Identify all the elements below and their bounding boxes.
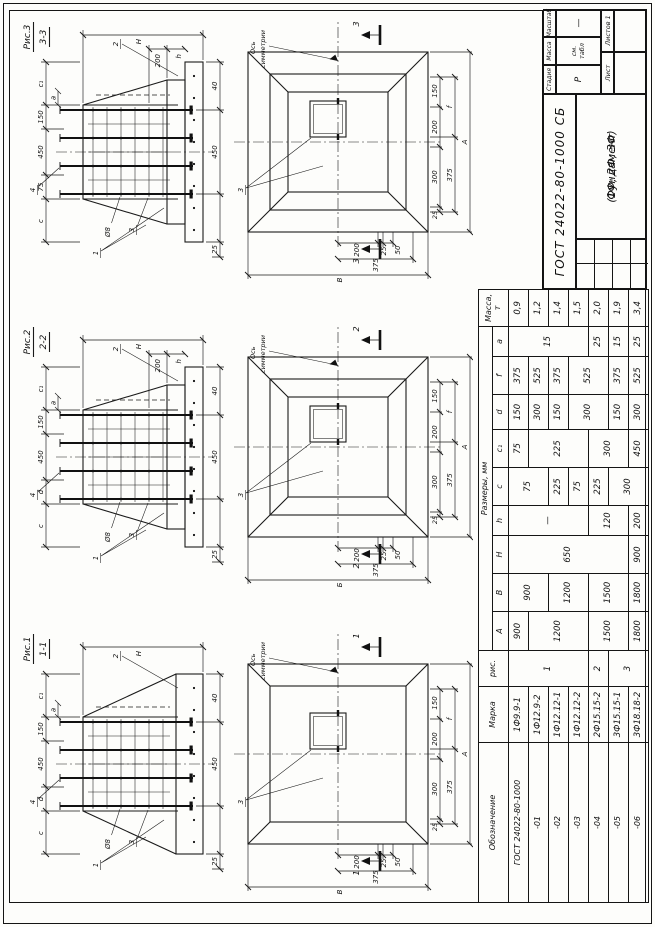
spec-row: ГОСТ 24022-80-10001Ф9.9-11900900650—7575… bbox=[509, 289, 529, 902]
col-header-A: А bbox=[493, 612, 509, 651]
figure-drawing: Рис.3 3-3 bbox=[8, 7, 473, 287]
dim-450: 450 bbox=[37, 450, 45, 464]
figure-label: Рис.3 bbox=[23, 24, 33, 49]
spec-cell-f: 375 bbox=[509, 357, 529, 395]
dim-40: 40 bbox=[211, 81, 219, 90]
plan-callout: 3 bbox=[237, 138, 323, 195]
spec-cell-a: 15 bbox=[509, 326, 589, 356]
callout-3: 3 bbox=[128, 228, 136, 232]
callout-1: 1 bbox=[92, 863, 100, 867]
figure-label: Рис.2 bbox=[23, 329, 33, 354]
spec-cell-d: 300 bbox=[629, 395, 649, 430]
empty-cell-1 bbox=[614, 52, 647, 94]
dim-plan-375-left: 375 bbox=[372, 563, 380, 577]
section-callouts: 1 4 2 3 Ø8 bbox=[29, 39, 178, 258]
dim-150: 150 bbox=[37, 722, 45, 736]
dim-25: 25 bbox=[211, 550, 219, 559]
plan-view: Ось симметрии 3 3 3 bbox=[234, 19, 473, 282]
spec-cell-obozn: ГОСТ 24022-80-1000 bbox=[509, 743, 529, 903]
plan-view: Ось симметрии 1 1 3 bbox=[234, 631, 473, 894]
dim-plan-b200: 200 bbox=[431, 732, 439, 746]
spec-cell-c: 300 bbox=[609, 468, 649, 506]
col-header-a: а bbox=[493, 326, 509, 356]
plan-callout-3: 3 bbox=[237, 493, 245, 497]
column-plan-square bbox=[310, 101, 346, 137]
dim-25: 25 bbox=[211, 245, 219, 254]
spec-row: -021Ф12.12-112002251503751,4 bbox=[549, 289, 569, 902]
drawing-sheet: Рис.1 1-1 bbox=[0, 0, 655, 927]
dim-plan-200: 200 bbox=[353, 855, 361, 869]
spec-cell-obozn: -06 bbox=[629, 743, 649, 903]
spec-cell-A: 900 bbox=[509, 612, 529, 651]
spec-cell-B: 900 bbox=[509, 574, 549, 612]
spec-cell-d: 150 bbox=[609, 395, 629, 430]
dim-plan-375-left: 375 bbox=[372, 258, 380, 272]
callout-2: 2 bbox=[112, 653, 120, 658]
spec-cell-A: 1500 bbox=[589, 612, 629, 651]
spec-cell-ris: 3 bbox=[609, 651, 649, 687]
spec-cell-c1: 75 bbox=[509, 430, 529, 468]
dim-c1: c₁ bbox=[37, 80, 45, 87]
dim-a: а bbox=[50, 96, 58, 100]
title-line2: (1Ф; 2Ф; 3Ф) bbox=[605, 130, 619, 202]
section-cut-marks: 1 1 bbox=[352, 633, 380, 875]
dim-plan-50: 50 bbox=[394, 857, 402, 866]
spec-cell-B: 1200 bbox=[549, 574, 589, 612]
dim-plan-f: f bbox=[446, 716, 454, 720]
axis-label-line2: симметрии bbox=[259, 335, 267, 373]
dim-plan-B: Б bbox=[336, 582, 344, 587]
spec-cell-marka: 3Ф18.18-2 bbox=[629, 687, 649, 743]
dim-h: h bbox=[175, 359, 183, 363]
col-header-B: В bbox=[493, 574, 509, 612]
spec-cell-c: 225 bbox=[549, 468, 569, 506]
spec-cell-c1: 450 bbox=[629, 430, 649, 468]
section-bottom-dims: 25 450 40 bbox=[196, 671, 224, 872]
section-title: 1-1 bbox=[39, 642, 49, 657]
section-view: c d 450 150 c₁ а 25 450 40 bbox=[29, 335, 224, 565]
spec-cell-f: 525 bbox=[629, 357, 649, 395]
dim-plan-A: А bbox=[461, 444, 469, 450]
spec-cell-mass: 0,9 bbox=[509, 289, 529, 326]
axis-label-line2: симметрии bbox=[259, 30, 267, 68]
col-header-H: Н bbox=[493, 536, 509, 574]
dim-450: 450 bbox=[37, 757, 45, 771]
document-code: ГОСТ 24022-80-1000 СБ bbox=[543, 94, 576, 289]
dim-c1: c₁ bbox=[37, 692, 45, 699]
spec-cell-marka: 1Ф12.12-1 bbox=[549, 687, 569, 743]
dim-c: c bbox=[37, 219, 45, 223]
dim-bolt-450: 450 bbox=[211, 145, 219, 159]
spec-cell-ris: 2 bbox=[589, 651, 609, 687]
figure-drawing: Рис.1 1-1 bbox=[8, 619, 473, 899]
col-header-ris: рис. bbox=[479, 651, 509, 687]
callout-1: 1 bbox=[92, 556, 100, 560]
spec-table: Обозначение Марка рис. Размеры, мм Масса… bbox=[478, 289, 649, 903]
col-header-marka: Марка bbox=[479, 687, 509, 743]
dim-200: 200 bbox=[154, 358, 162, 372]
dim-plan-375-bottom: 375 bbox=[446, 780, 454, 794]
callout-4: 4 bbox=[29, 800, 37, 804]
figure-label: Рис.1 bbox=[23, 637, 33, 662]
section-bottom-dims: 25 450 40 bbox=[196, 59, 224, 260]
spec-cell-c1: 225 bbox=[529, 430, 589, 468]
cut-label-right: 2 bbox=[352, 326, 361, 331]
spec-cell-mass: 1,9 bbox=[609, 289, 629, 326]
figures-row: Рис.1 1-1 bbox=[0, 0, 478, 927]
callout-2: 2 bbox=[112, 346, 120, 351]
callout-3: 3 bbox=[128, 840, 136, 844]
callout-1: 1 bbox=[92, 251, 100, 255]
dim-H: Н bbox=[135, 343, 143, 349]
spec-cell-h: 120 bbox=[589, 506, 629, 536]
dim-c: c bbox=[37, 524, 45, 528]
dim-plan-300: 300 bbox=[431, 475, 439, 489]
section-title: 3-3 bbox=[39, 29, 49, 44]
spec-cell-f: 525 bbox=[529, 357, 549, 395]
plan-bottom-dims: 25 300 200 150 375 f А bbox=[430, 661, 473, 847]
plan-view: Ось симметрии 2 2 3 bbox=[234, 324, 473, 587]
spec-cell-c1: 300 bbox=[589, 430, 629, 468]
spec-cell-obozn: -05 bbox=[609, 743, 629, 903]
signature-grid bbox=[576, 239, 647, 289]
axis-of-symmetry-label: Ось симметрии bbox=[249, 30, 338, 68]
spec-cell-ris: 1 bbox=[509, 651, 589, 687]
dim-a: а bbox=[50, 708, 58, 712]
callout-4: 4 bbox=[29, 188, 37, 192]
spec-cell-obozn: -02 bbox=[549, 743, 569, 903]
spec-cell-mass: 2,0 bbox=[589, 289, 609, 326]
dim-c1: c₁ bbox=[37, 385, 45, 392]
stage-header: Стадия bbox=[543, 65, 556, 94]
col-header-c1: c₁ bbox=[493, 430, 509, 468]
figure-caption: Рис.3 3-3 bbox=[23, 22, 50, 52]
dim-plan-25: 25 bbox=[380, 858, 388, 867]
title-block: ГОСТ 24022-80-1000 СБ Стадия Масса Масшт… bbox=[542, 10, 646, 290]
spec-cell-c: 75 bbox=[569, 468, 589, 506]
dim-plan-25: 25 bbox=[380, 551, 388, 560]
col-header-f: f bbox=[493, 357, 509, 395]
figure-group: Рис.3 3-3 bbox=[8, 7, 473, 287]
col-header-mass: Масса, т bbox=[479, 289, 509, 326]
sheet-cell: Лист bbox=[601, 52, 614, 94]
spec-cell-A: 1800 bbox=[629, 612, 649, 651]
figure-group: Рис.2 2-2 bbox=[8, 312, 473, 592]
spec-cell-mass: 1,5 bbox=[569, 289, 589, 326]
column-plan-square bbox=[310, 713, 346, 749]
figure-drawing: Рис.2 2-2 bbox=[8, 312, 473, 592]
callout-rebar-diameter: Ø8 bbox=[104, 838, 112, 850]
spec-cell-marka: 1Ф12.12-2 bbox=[569, 687, 589, 743]
spec-cell-mass: 3,4 bbox=[629, 289, 649, 326]
spec-cell-c: 75 bbox=[509, 468, 549, 506]
spec-cell-H: 650 bbox=[509, 536, 629, 574]
dim-plan-200: 200 bbox=[353, 548, 361, 562]
drawing-title: Фундамент (1Ф; 2Ф; 3Ф) bbox=[576, 94, 647, 239]
plan-bottom-dims: 25 300 200 150 375 f А bbox=[430, 354, 473, 540]
dim-plan-b25: 25 bbox=[431, 823, 439, 831]
dim-200: 200 bbox=[154, 53, 162, 67]
dim-plan-300: 300 bbox=[431, 782, 439, 796]
dim-450: 450 bbox=[37, 145, 45, 159]
col-header-oboznachenie: Обозначение bbox=[479, 743, 509, 903]
plan-callout: 3 bbox=[237, 443, 323, 500]
dim-plan-A: А bbox=[461, 751, 469, 757]
spec-cell-H: 900 bbox=[629, 536, 649, 574]
spec-cell-obozn: -03 bbox=[569, 743, 589, 903]
dim-plan-A: А bbox=[461, 139, 469, 145]
spec-cell-d: 300 bbox=[529, 395, 549, 430]
mass-value: см. табл bbox=[556, 37, 601, 65]
spec-cell-mass: 1,2 bbox=[529, 289, 549, 326]
dim-plan-B: В bbox=[336, 889, 344, 894]
section-cut-marks: 3 3 bbox=[352, 21, 380, 263]
col-header-c: c bbox=[493, 468, 509, 506]
column-plan-square bbox=[310, 406, 346, 442]
dim-plan-f: f bbox=[446, 409, 454, 413]
axis-label-line1: Ось bbox=[249, 653, 257, 666]
section-height-dim: Н bbox=[80, 335, 206, 408]
dim-plan-50: 50 bbox=[394, 550, 402, 559]
dim-plan-200: 200 bbox=[353, 243, 361, 257]
spec-cell-obozn: -01 bbox=[529, 743, 549, 903]
spec-cell-f: 525 bbox=[569, 357, 609, 395]
axis-label-line1: Ось bbox=[249, 346, 257, 359]
plan-callout: 3 bbox=[237, 750, 323, 807]
reinforcement-mesh bbox=[88, 687, 195, 843]
dim-plan-375-left: 375 bbox=[372, 870, 380, 884]
section-bottom-dims: 25 450 40 bbox=[196, 364, 224, 565]
stage-value: Р bbox=[556, 65, 601, 94]
spec-cell-obozn: -04 bbox=[589, 743, 609, 903]
plan-callout-3: 3 bbox=[237, 188, 245, 192]
callout-2: 2 bbox=[112, 41, 120, 46]
figure-caption: Рис.1 1-1 bbox=[23, 634, 50, 664]
section-height-dim: Н bbox=[80, 30, 206, 103]
spec-cell-marka: 1Ф12.9-2 bbox=[529, 687, 549, 743]
section-title: 2-2 bbox=[39, 334, 49, 349]
empty-cell-2 bbox=[614, 9, 647, 52]
section-cut-marks: 2 2 bbox=[352, 326, 380, 568]
spec-cell-B: 1800 bbox=[629, 574, 649, 612]
dim-150: 150 bbox=[37, 415, 45, 429]
scanned-drawing-page: Рис.1 1-1 bbox=[0, 0, 655, 927]
axis-label-line2: симметрии bbox=[259, 642, 267, 680]
dim-plan-150: 150 bbox=[431, 389, 439, 403]
callout-rebar-diameter: Ø8 bbox=[104, 531, 112, 543]
cut-label-right: 3 bbox=[352, 21, 361, 26]
spec-cell-a: 15 bbox=[609, 326, 629, 356]
spec-cell-mass: 1,4 bbox=[549, 289, 569, 326]
dim-a: а bbox=[50, 401, 58, 405]
dim-plan-b200: 200 bbox=[431, 120, 439, 134]
dim-plan-25: 25 bbox=[380, 246, 388, 255]
dim-40: 40 bbox=[211, 386, 219, 395]
figure-group: Рис.1 1-1 bbox=[8, 619, 473, 899]
dim-plan-f: f bbox=[446, 104, 454, 108]
plan-callout-3: 3 bbox=[237, 800, 245, 804]
spec-cell-marka: 2Ф15.15-2 bbox=[589, 687, 609, 743]
callout-4: 4 bbox=[29, 493, 37, 497]
scale-value: — bbox=[556, 9, 601, 37]
section-height-dim: Н bbox=[80, 642, 206, 715]
spec-row: -063Ф18.18-218001800900200450300525253,4 bbox=[629, 289, 649, 902]
dim-H: Н bbox=[135, 650, 143, 656]
spec-cell-h: 200 bbox=[629, 506, 649, 536]
dim-plan-b25: 25 bbox=[431, 516, 439, 524]
figure-caption: Рис.2 2-2 bbox=[23, 327, 50, 357]
dim-bolt-450: 450 bbox=[211, 450, 219, 464]
section-view: c d 450 150 c₁ а 25 450 40 bbox=[29, 642, 224, 872]
dim-plan-150: 150 bbox=[431, 696, 439, 710]
axis-of-symmetry-label: Ось симметрии bbox=[249, 642, 338, 680]
dim-plan-b25: 25 bbox=[431, 211, 439, 219]
col-header-d: d bbox=[493, 395, 509, 430]
dim-bolt-450: 450 bbox=[211, 757, 219, 771]
mass-header: Масса bbox=[543, 37, 556, 65]
dim-150: 150 bbox=[37, 110, 45, 124]
scale-header: Масштаб bbox=[543, 9, 556, 37]
dim-plan-50: 50 bbox=[394, 245, 402, 254]
spec-cell-c: 225 bbox=[589, 468, 609, 506]
cut-label-right: 1 bbox=[352, 633, 361, 638]
spec-cell-A: 1200 bbox=[529, 612, 589, 651]
col-header-h: h bbox=[493, 506, 509, 536]
spec-cell-B: 1500 bbox=[589, 574, 629, 612]
spec-cell-a: 25 bbox=[629, 326, 649, 356]
dim-plan-150: 150 bbox=[431, 84, 439, 98]
dim-plan-300: 300 bbox=[431, 170, 439, 184]
spec-cell-f: 375 bbox=[549, 357, 569, 395]
callout-rebar-diameter: Ø8 bbox=[104, 226, 112, 238]
spec-cell-f: 375 bbox=[609, 357, 629, 395]
dim-plan-375-bottom: 375 bbox=[446, 168, 454, 182]
spec-cell-marka: 1Ф9.9-1 bbox=[509, 687, 529, 743]
dim-plan-b200: 200 bbox=[431, 425, 439, 439]
dim-plan-375-bottom: 375 bbox=[446, 473, 454, 487]
sheets-count-cell: Листов 1 bbox=[601, 9, 614, 52]
spec-cell-a: 25 bbox=[589, 326, 609, 356]
axis-label-line1: Ось bbox=[249, 41, 257, 54]
spec-cell-h: — bbox=[509, 506, 589, 536]
dim-25: 25 bbox=[211, 857, 219, 866]
axis-of-symmetry-label: Ось симметрии bbox=[249, 335, 338, 373]
spec-cell-d: 300 bbox=[569, 395, 609, 430]
section-callouts: 1 4 2 3 Ø8 bbox=[29, 344, 178, 563]
dim-c: c bbox=[37, 831, 45, 835]
spec-cell-marka: 3Ф15.15-1 bbox=[609, 687, 629, 743]
dim-plan-B: В bbox=[336, 277, 344, 282]
plan-bottom-dims: 25 300 200 150 375 f А bbox=[430, 49, 473, 235]
dim-h: h bbox=[175, 54, 183, 58]
dim-H: Н bbox=[135, 38, 143, 44]
dim-40: 40 bbox=[211, 693, 219, 702]
spec-cell-d: 150 bbox=[509, 395, 529, 430]
callout-3: 3 bbox=[128, 533, 136, 537]
spec-cell-d: 150 bbox=[549, 395, 569, 430]
col-header-sizes-group: Размеры, мм bbox=[479, 326, 493, 650]
section-view: c 75 450 150 c₁ а 25 450 40 bbox=[29, 30, 224, 260]
